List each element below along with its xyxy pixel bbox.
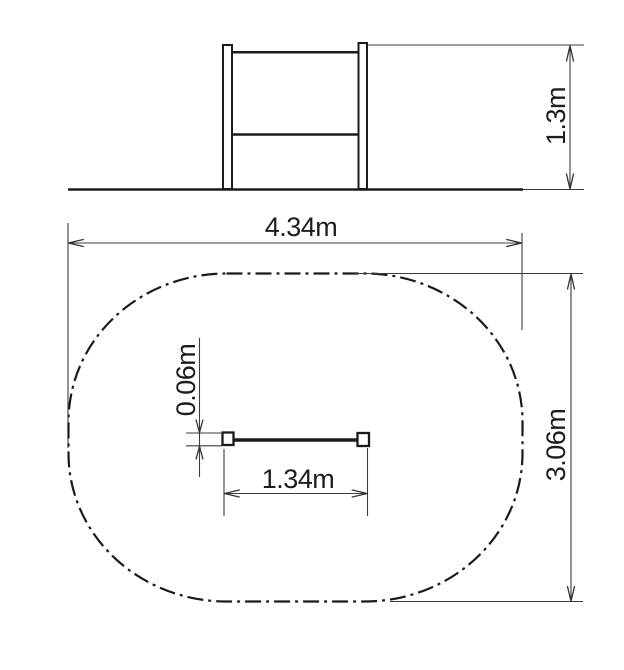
equipment-plan [223,433,370,447]
left-post [223,45,232,189]
left-post-square [223,433,234,446]
right-post-square [358,433,370,446]
right-post [359,43,368,189]
dimension-zone-depth: 3.06m [355,274,583,602]
equipment-length-label: 1.34m [262,464,335,494]
dimension-post-size: 0.06m [171,338,222,477]
elevation-height-label: 1.3m [541,87,571,145]
dimension-zone-width: 4.34m [68,212,522,448]
plan-view: 4.34m 3.06m 0.06m [68,212,583,602]
zone-depth-label: 3.06m [541,409,571,482]
technical-drawing-page: 1.3m 4.34m 3.06m [0,0,624,670]
elevation-view: 1.3m [68,43,584,190]
dimension-elevation-height: 1.3m [541,46,574,190]
technical-drawing: 1.3m 4.34m 3.06m [0,0,624,670]
zone-width-label: 4.34m [265,212,338,242]
post-size-label: 0.06m [171,344,201,417]
safety-zone-outline [69,274,523,602]
dimension-equipment-length: 1.34m [224,448,368,516]
